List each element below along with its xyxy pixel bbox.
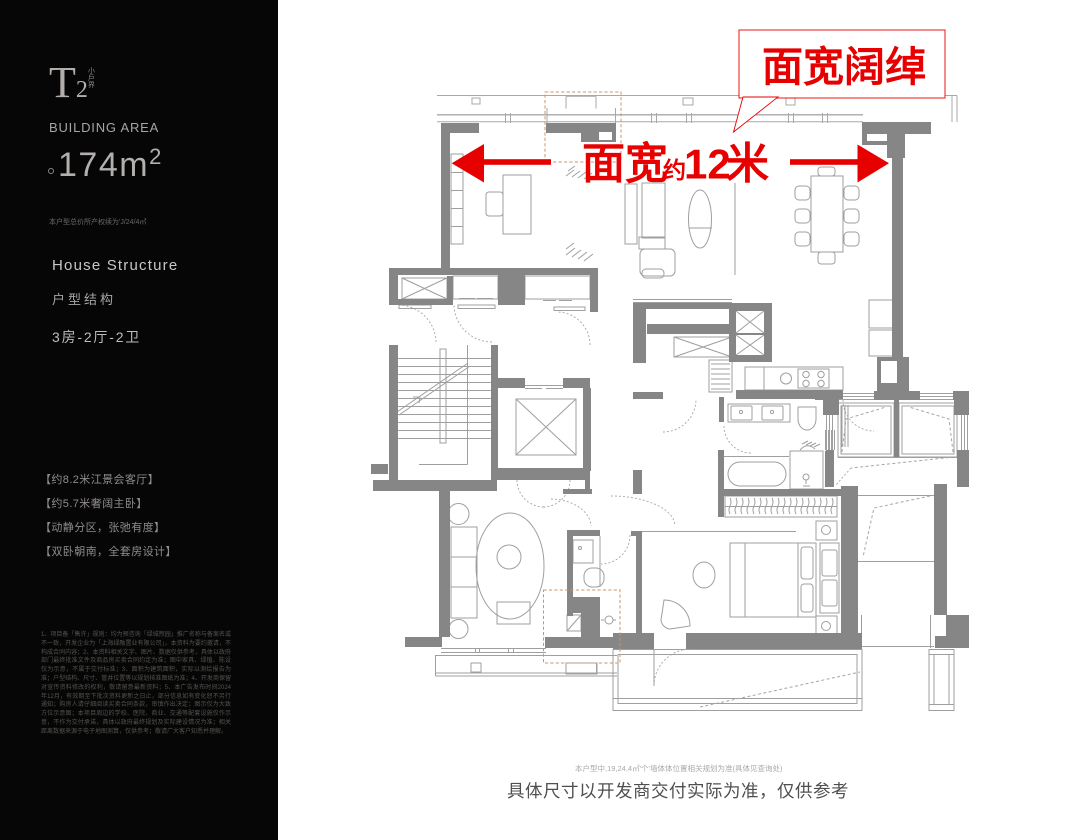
svg-text:面宽: 面宽: [582, 141, 668, 189]
svg-text:米: 米: [726, 141, 769, 189]
svg-text:面宽阔绰: 面宽阔绰: [762, 44, 926, 90]
svg-text:约: 约: [663, 157, 686, 183]
svg-text:12: 12: [684, 141, 731, 188]
